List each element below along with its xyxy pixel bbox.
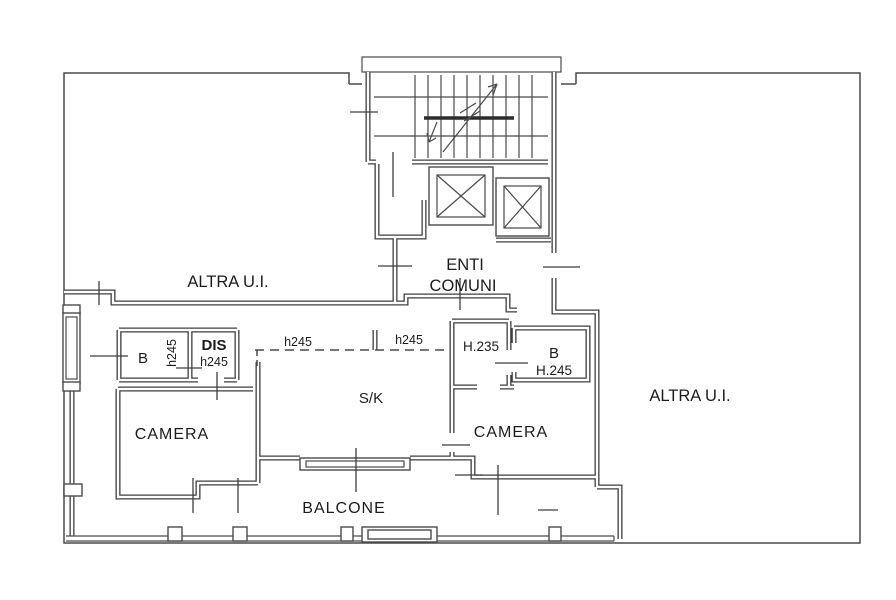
label-dis: DIS bbox=[201, 337, 226, 354]
label-h235: H.235 bbox=[463, 339, 499, 354]
elevator-2 bbox=[496, 178, 549, 236]
label-altra-ui-left: ALTRA U.I. bbox=[187, 273, 268, 291]
label-enti: ENTI bbox=[446, 256, 484, 274]
floor-plan-page: ALTRA U.I. ALTRA U.I. ENTI COMUNI B h245… bbox=[0, 0, 896, 600]
stair-top-wall-band bbox=[362, 57, 561, 72]
label-balcone: BALCONE bbox=[302, 500, 385, 517]
label-bath-left-height: h245 bbox=[165, 339, 179, 367]
label-dis-height: h245 bbox=[200, 355, 228, 369]
label-altra-ui-right: ALTRA U.I. bbox=[649, 387, 730, 405]
balcony-door bbox=[300, 458, 410, 470]
label-camera-left: CAMERA bbox=[135, 426, 209, 443]
label-bath-right-height: H.245 bbox=[536, 363, 572, 378]
label-sk-height-right: h245 bbox=[395, 333, 423, 347]
height-change-dashed-line bbox=[255, 350, 450, 368]
label-sk-height-left: h245 bbox=[284, 335, 312, 349]
elevator-1 bbox=[429, 167, 493, 225]
label-camera-right: CAMERA bbox=[474, 424, 548, 441]
door-ticks bbox=[90, 112, 580, 515]
site-boundary bbox=[64, 73, 860, 543]
label-comuni: COMUNI bbox=[430, 277, 497, 295]
balcony-railing bbox=[66, 536, 614, 541]
label-bath-right: B bbox=[549, 345, 559, 362]
label-bath-left: B bbox=[138, 350, 148, 367]
staircase bbox=[362, 57, 561, 158]
railing-post bbox=[549, 527, 561, 541]
floor-plan-drawing: ALTRA U.I. ALTRA U.I. ENTI COMUNI B h245… bbox=[0, 0, 896, 600]
railing-post bbox=[168, 527, 182, 541]
railing-post bbox=[341, 527, 353, 541]
railing-post bbox=[233, 527, 247, 541]
label-sk: S/K bbox=[359, 390, 383, 407]
